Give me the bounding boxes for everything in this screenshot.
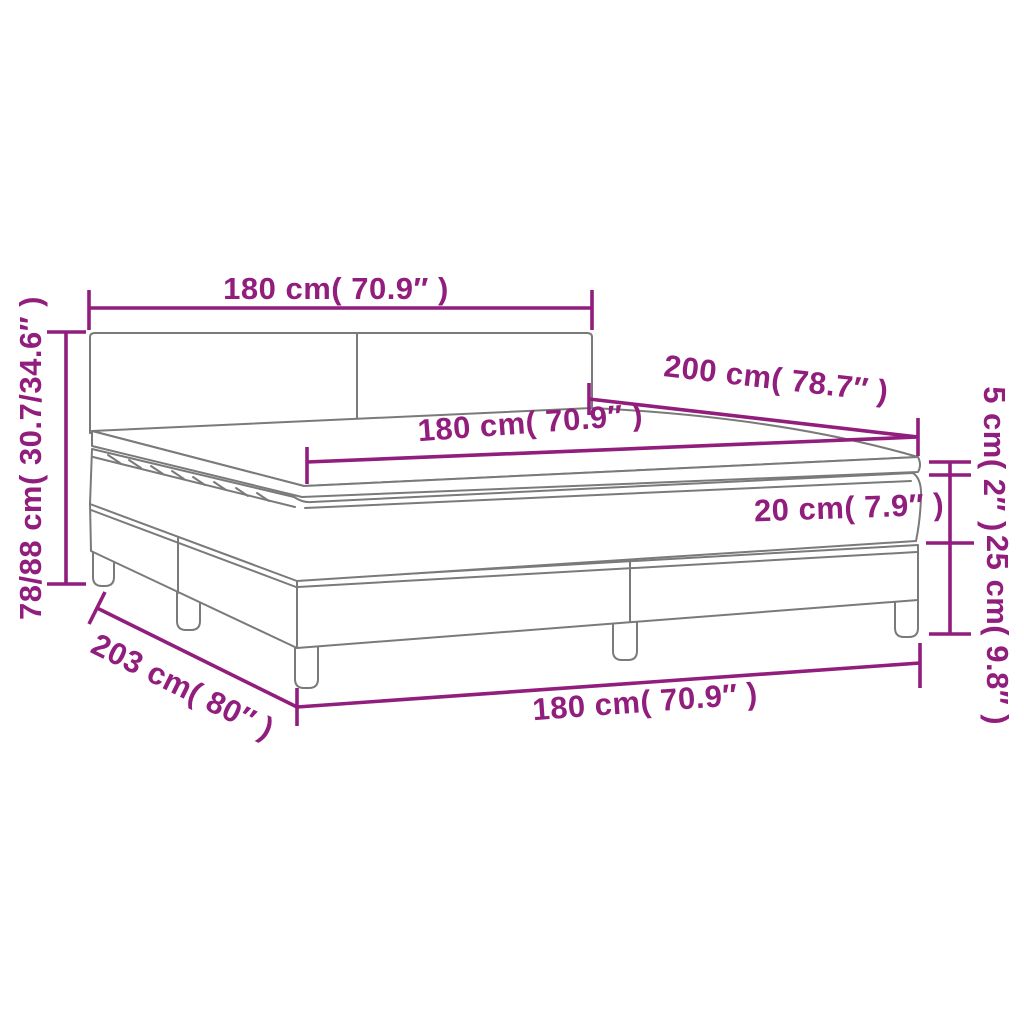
dim-mattress-length-label: 200 cm( 78.7″ ) <box>662 348 890 409</box>
dim-headboard-width: 180 cm( 70.9″ ) <box>89 271 592 330</box>
diagram-svg: 180 cm( 70.9″ ) 78/88 cm( 30.7/34.6″ ) 2… <box>0 0 1024 1024</box>
bed-dimension-diagram: 180 cm( 70.9″ ) 78/88 cm( 30.7/34.6″ ) 2… <box>0 0 1024 1024</box>
dim-base-width: 180 cm( 70.9″ ) <box>297 643 920 727</box>
dim-headboard-width-label: 180 cm( 70.9″ ) <box>223 271 449 306</box>
dim-base-width-label: 180 cm( 70.9″ ) <box>531 676 759 727</box>
dim-topper-height-label: 5 cm( 2″ ) <box>977 386 1012 532</box>
dim-total-height: 78/88 cm( 30.7/34.6″ ) <box>13 296 86 620</box>
dim-total-height-label: 78/88 cm( 30.7/34.6″ ) <box>13 296 48 620</box>
dim-mattress-height-label: 20 cm( 7.9″ ) <box>753 487 944 529</box>
dim-box-height-label: 25 cm( 9.8″ ) <box>980 535 1015 725</box>
dim-base-length-label: 203 cm( 80″ ) <box>86 627 280 747</box>
